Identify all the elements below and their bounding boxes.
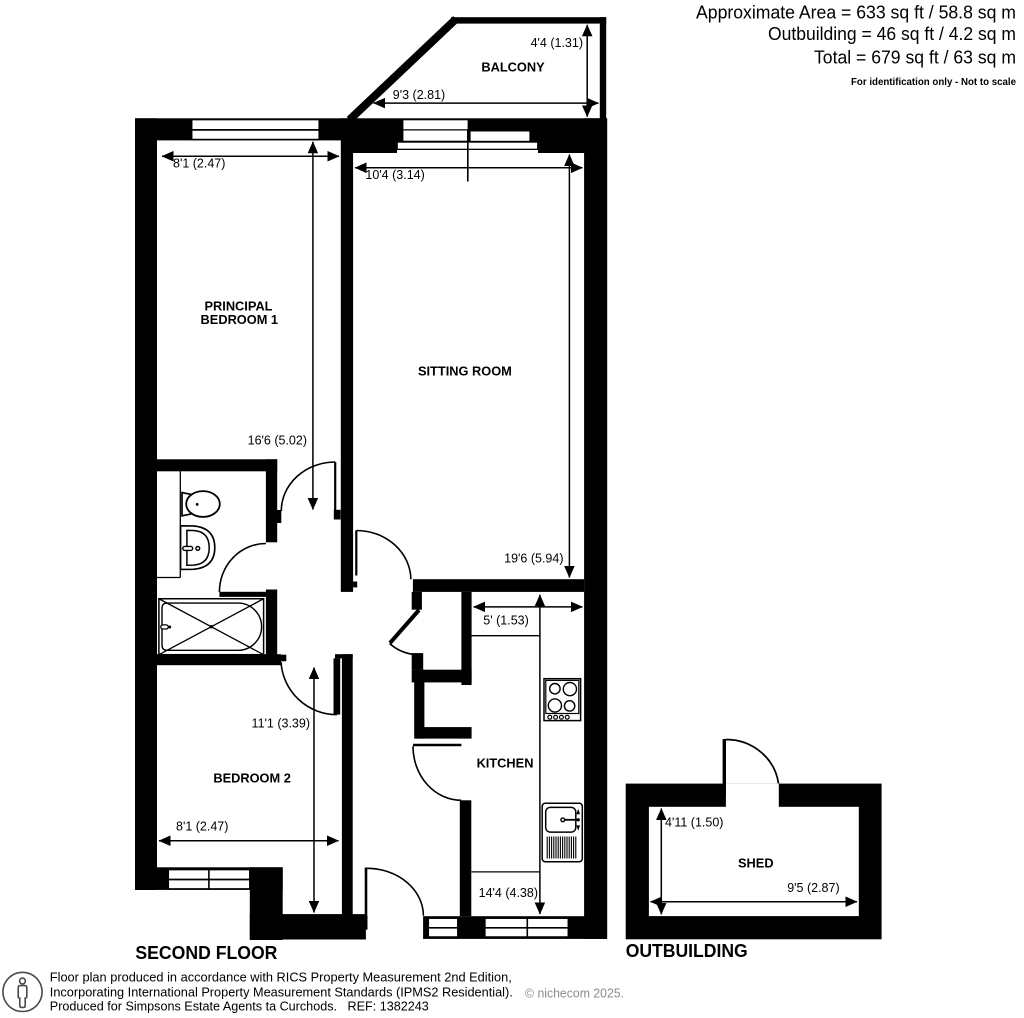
svg-text:Produced for Simpsons Estate A: Produced for Simpsons Estate Agents ta C… (50, 999, 429, 1013)
svg-text:4'4 (1.31): 4'4 (1.31) (531, 36, 583, 50)
svg-text:SECOND FLOOR: SECOND FLOOR (135, 942, 277, 963)
svg-text:9'5 (2.87): 9'5 (2.87) (787, 881, 839, 895)
svg-text:4'11 (1.50): 4'11 (1.50) (665, 816, 723, 830)
svg-text:8'1 (2.47): 8'1 (2.47) (176, 820, 228, 834)
svg-text:11'1 (3.39): 11'1 (3.39) (252, 717, 310, 731)
svg-text:SHED: SHED (738, 856, 774, 871)
svg-text:SITTING ROOM: SITTING ROOM (418, 364, 512, 379)
svg-text:OUTBUILDING: OUTBUILDING (626, 940, 748, 961)
svg-text:Total = 679 sq ft / 63 sq m: Total = 679 sq ft / 63 sq m (814, 48, 1016, 68)
svg-text:Floor plan produced in accorda: Floor plan produced in accordance with R… (50, 971, 512, 985)
svg-text:BALCONY: BALCONY (481, 59, 545, 74)
svg-text:© nichecom 2025.: © nichecom 2025. (525, 985, 624, 1000)
svg-text:9'3 (2.81): 9'3 (2.81) (393, 88, 445, 102)
svg-text:14'4 (4.38): 14'4 (4.38) (479, 886, 538, 900)
svg-text:Outbuilding = 46 sq ft / 4.2 s: Outbuilding = 46 sq ft / 4.2 sq m (768, 24, 1016, 44)
svg-text:10'4 (3.14): 10'4 (3.14) (365, 168, 424, 182)
svg-text:Approximate Area = 633 sq ft /: Approximate Area = 633 sq ft / 58.8 sq m (696, 3, 1016, 23)
svg-text:BEDROOM 2: BEDROOM 2 (213, 770, 291, 785)
svg-text:8'1 (2.47): 8'1 (2.47) (173, 157, 225, 171)
svg-text:KITCHEN: KITCHEN (477, 755, 534, 770)
svg-text:5' (1.53): 5' (1.53) (483, 614, 528, 628)
svg-text:Incorporating International Pr: Incorporating International Property Mea… (50, 985, 513, 999)
svg-text:16'6 (5.02): 16'6 (5.02) (248, 434, 307, 448)
svg-text:19'6 (5.94): 19'6 (5.94) (504, 552, 563, 566)
svg-text:For identification only - Not: For identification only - Not to scale (851, 76, 1016, 88)
svg-text:BEDROOM 1: BEDROOM 1 (201, 312, 279, 327)
